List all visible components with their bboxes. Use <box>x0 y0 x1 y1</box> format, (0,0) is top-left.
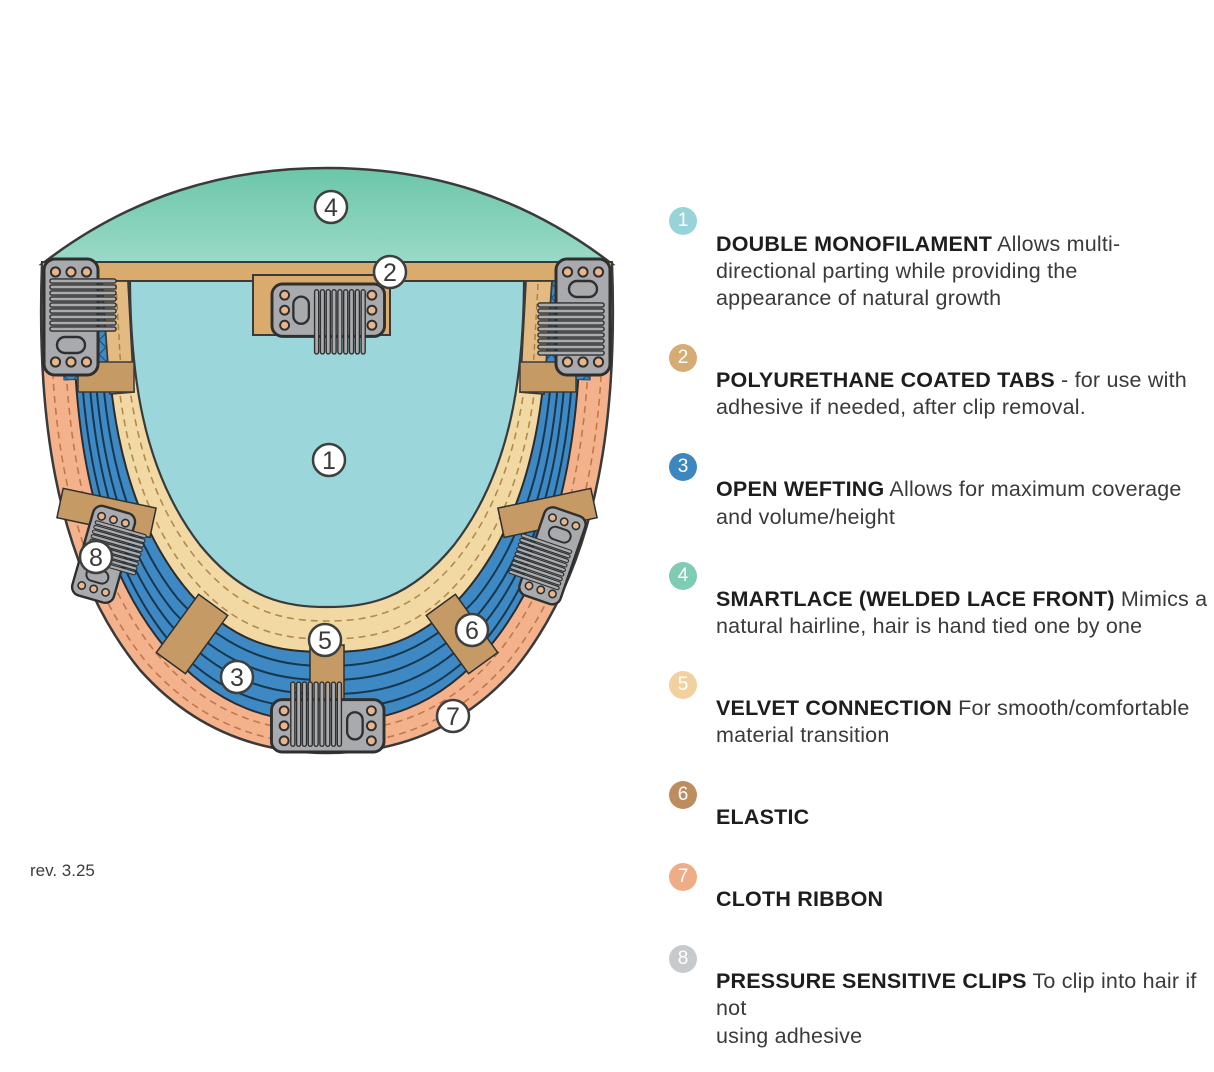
svg-text:7: 7 <box>446 703 460 731</box>
svg-text:5: 5 <box>318 627 332 655</box>
legend-text: OPEN WEFTING Allows for maximum coverage… <box>716 476 1182 531</box>
legend-number-badge: 2 <box>669 344 697 372</box>
legend-item-double-monofilament: 1 DOUBLE MONOFILAMENT Allows multi- dire… <box>669 209 1209 334</box>
callout-6: 6 <box>456 614 488 646</box>
legend-text: CLOTH RIBBON <box>716 886 883 913</box>
svg-text:1: 1 <box>322 447 336 475</box>
legend-text: SMARTLACE (WELDED LACE FRONT) Mimics a n… <box>716 586 1207 641</box>
legend-number-badge: 4 <box>669 562 697 590</box>
legend-number-badge: 6 <box>669 781 697 809</box>
svg-text:4: 4 <box>324 194 338 222</box>
callout-3: 3 <box>221 661 253 693</box>
legend-text: ELASTIC <box>716 804 809 831</box>
svg-text:8: 8 <box>89 544 103 572</box>
legend-number-badge: 3 <box>669 453 697 481</box>
svg-text:3: 3 <box>230 664 244 692</box>
legend-text: PRESSURE SENSITIVE CLIPS To clip into ha… <box>716 968 1209 1050</box>
legend-number-badge: 1 <box>669 207 697 235</box>
legend-item-pressure-clips: 8 PRESSURE SENSITIVE CLIPS To clip into … <box>669 947 1209 1072</box>
legend-text: VELVET CONNECTION For smooth/comfortable… <box>716 695 1190 750</box>
legend-text: DOUBLE MONOFILAMENT Allows multi- direct… <box>716 231 1120 313</box>
svg-text:2: 2 <box>383 259 397 287</box>
callout-7: 7 <box>437 700 469 732</box>
legend-item-velvet-connection: 5 VELVET CONNECTION For smooth/comfortab… <box>669 673 1209 771</box>
legend-item-cloth-ribbon: 7 CLOTH RIBBON <box>669 865 1209 935</box>
legend-text: POLYURETHANE COATED TABS - for use with … <box>716 367 1187 422</box>
wig-cap-diagram: 1 2 3 4 5 6 7 8 <box>0 0 660 912</box>
callout-4: 4 <box>315 191 347 223</box>
legend-item-polyurethane-tabs: 2 POLYURETHANE COATED TABS - for use wit… <box>669 346 1209 444</box>
legend-number-badge: 7 <box>669 863 697 891</box>
callout-1: 1 <box>313 444 345 476</box>
callout-5: 5 <box>309 624 341 656</box>
legend-item-open-wefting: 3 OPEN WEFTING Allows for maximum covera… <box>669 455 1209 553</box>
callout-8: 8 <box>80 541 112 573</box>
legend-item-elastic: 6 ELASTIC <box>669 783 1209 853</box>
legend-number-badge: 8 <box>669 945 697 973</box>
callout-2: 2 <box>374 256 406 288</box>
svg-text:6: 6 <box>465 617 479 645</box>
legend: 1 DOUBLE MONOFILAMENT Allows multi- dire… <box>669 209 1209 1072</box>
legend-item-smartlace: 4 SMARTLACE (WELDED LACE FRONT) Mimics a… <box>669 564 1209 662</box>
legend-number-badge: 5 <box>669 671 697 699</box>
revision-label: rev. 3.25 <box>30 861 95 881</box>
